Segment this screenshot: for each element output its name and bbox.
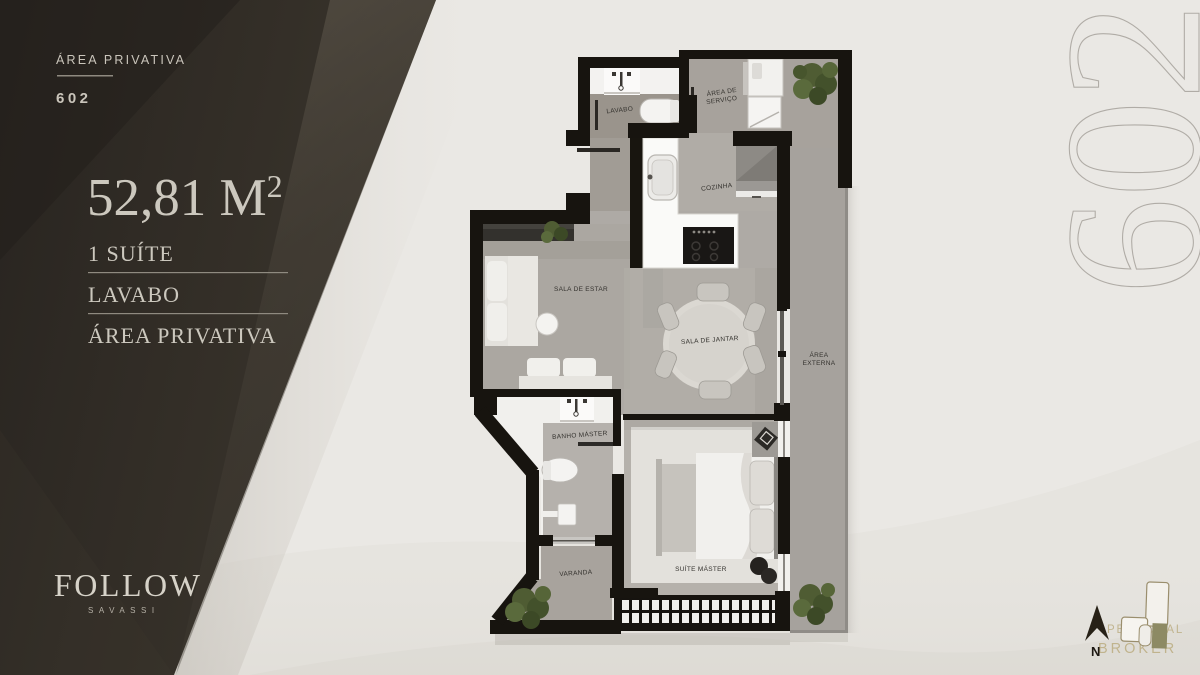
svg-text:SAVASSI: SAVASSI xyxy=(88,606,160,615)
svg-text:N: N xyxy=(1091,644,1100,659)
svg-text:1 SUÍTE: 1 SUÍTE xyxy=(88,241,174,266)
svg-text:LAVABO: LAVABO xyxy=(88,282,180,307)
svg-text:ÁREA: ÁREA xyxy=(810,350,829,359)
svg-text:EXTERNA: EXTERNA xyxy=(803,360,836,367)
svg-text:602: 602 xyxy=(1026,3,1200,296)
svg-text:SUÍTE MÁSTER: SUÍTE MÁSTER xyxy=(675,564,727,573)
svg-text:ÁREA PRIVATIVA: ÁREA PRIVATIVA xyxy=(88,323,277,348)
svg-text:FOLLOW: FOLLOW xyxy=(54,567,202,603)
svg-text:602: 602 xyxy=(56,90,92,107)
svg-text:ÁREA PRIVATIVA: ÁREA PRIVATIVA xyxy=(56,52,186,67)
svg-text:52,81 M2: 52,81 M2 xyxy=(87,168,283,227)
svg-text:SALA DE ESTAR: SALA DE ESTAR xyxy=(554,286,608,293)
